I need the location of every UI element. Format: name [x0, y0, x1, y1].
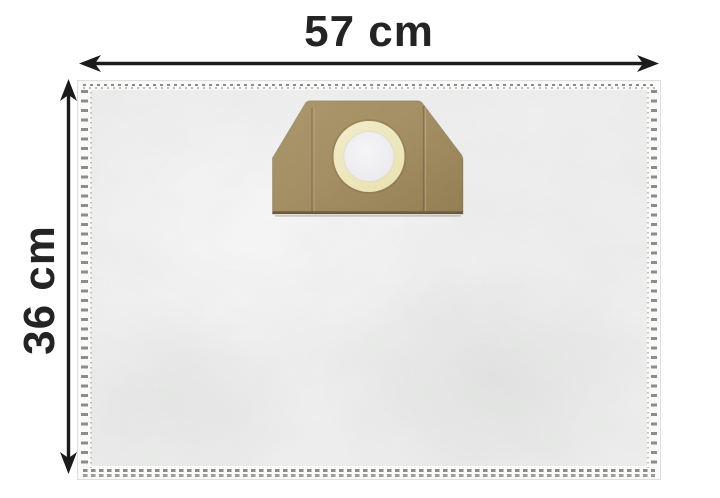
bag-stitch-left	[81, 90, 88, 470]
horizontal-dimension-arrow-icon	[79, 55, 659, 72]
width-arrow-head-left	[79, 55, 101, 72]
width-arrow-head-right	[637, 55, 659, 72]
height-dimension-label: 36 cm	[16, 170, 64, 410]
bag-stitch-top	[83, 84, 655, 86]
bag-surface	[91, 90, 647, 466]
bag-stitch-bottom	[83, 469, 655, 472]
width-dimension-label: 57 cm	[249, 8, 489, 56]
dust-bag	[77, 80, 661, 480]
product-dimension-diagram: 57 cm 36 cm	[0, 0, 720, 498]
height-arrow-head-bottom	[60, 452, 77, 474]
height-arrow-head-top	[60, 79, 77, 101]
bag-stitch-top-fine	[83, 87, 655, 89]
bag-stitch-right	[651, 90, 658, 470]
bag-stitch-bottom-outer	[83, 474, 655, 477]
